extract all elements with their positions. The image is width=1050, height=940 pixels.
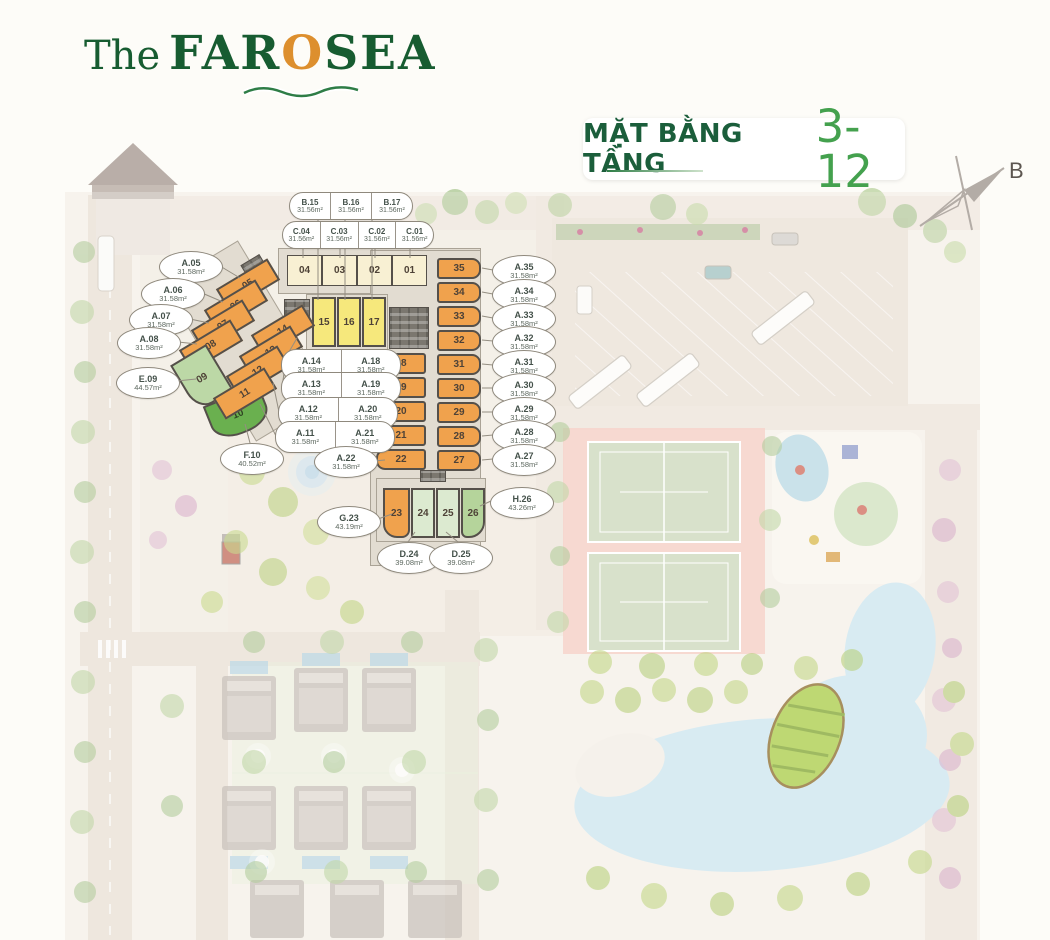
logo-o: O bbox=[281, 26, 324, 81]
unit-area: 39.08m² bbox=[447, 559, 475, 567]
unit-area: 31.58m² bbox=[291, 438, 319, 446]
unit-block-24: 24 bbox=[411, 488, 435, 538]
unit-label-b15: B.1531.56m² bbox=[290, 193, 330, 219]
unit-label-d25: D.2539.08m² bbox=[429, 542, 493, 574]
entry-tower bbox=[88, 143, 178, 255]
unit-block-35: 35 bbox=[437, 258, 481, 279]
unit-area: 31.56m² bbox=[364, 236, 390, 244]
logo-brand: FAROSEA bbox=[169, 26, 436, 81]
unit-area: 31.58m² bbox=[332, 463, 360, 471]
logo-the: The bbox=[84, 33, 160, 79]
leaf-island bbox=[754, 673, 858, 799]
unit-block-17: 17 bbox=[362, 297, 386, 347]
unit-block-28: 28 bbox=[437, 426, 481, 447]
unit-area: 43.19m² bbox=[335, 523, 363, 531]
unit-id: B.16 bbox=[343, 198, 360, 207]
plan-title: MẶT BẰNG TẦNG 3-12 bbox=[583, 118, 905, 180]
unit-label-c04: C.0431.56m² bbox=[283, 222, 320, 248]
unit-id: C.04 bbox=[293, 227, 310, 236]
unit-label-c01: C.0131.56m² bbox=[395, 222, 433, 248]
unit-label-a22: A.2231.58m² bbox=[314, 446, 378, 478]
unit-block-33: 33 bbox=[437, 306, 481, 327]
kiosk bbox=[222, 534, 240, 564]
unit-label-h26: H.2643.26m² bbox=[490, 487, 554, 519]
unit-block-31: 31 bbox=[437, 354, 481, 375]
tennis-courts bbox=[563, 428, 765, 654]
unit-label-b17: B.1731.56m² bbox=[371, 193, 412, 219]
unit-area: 31.58m² bbox=[177, 268, 205, 276]
pool-deck bbox=[567, 722, 673, 807]
unit-area: 31.56m² bbox=[326, 236, 352, 244]
unit-label-a27: A.2731.58m² bbox=[492, 444, 556, 476]
playground bbox=[768, 428, 922, 584]
unit-area: 40.52m² bbox=[238, 460, 266, 468]
north-compass-icon: B bbox=[912, 148, 1032, 243]
unit-label-a08: A.0831.58m² bbox=[117, 327, 181, 359]
unit-id: C.01 bbox=[406, 227, 423, 236]
unit-block-34: 34 bbox=[437, 282, 481, 303]
unit-block-30: 30 bbox=[437, 378, 481, 399]
stair-core-bottom bbox=[420, 470, 446, 482]
plan-title-floors: 3-12 bbox=[816, 104, 905, 194]
unit-area: 44.57m² bbox=[134, 384, 162, 392]
unit-block-04: 04 bbox=[287, 255, 322, 286]
unit-label-a11: A.1131.58m² bbox=[276, 422, 335, 452]
unit-label-f10: F.1040.52m² bbox=[220, 443, 284, 475]
unit-block-27: 27 bbox=[437, 450, 481, 471]
unit-area: 43.26m² bbox=[508, 504, 536, 512]
unit-label-c03: C.0331.56m² bbox=[320, 222, 358, 248]
unit-area: 31.58m² bbox=[351, 438, 379, 446]
unit-block-23: 23 bbox=[383, 488, 410, 538]
master-plan-page: 04 03 02 01 15 16 17 05 06 07 08 09 10 1… bbox=[0, 0, 1050, 940]
unit-label-group-c04-c01: C.0431.56m² C.0331.56m² C.0231.56m² C.01… bbox=[282, 221, 434, 249]
title-underline bbox=[607, 170, 703, 172]
unit-label-g23: G.2343.19m² bbox=[317, 506, 381, 538]
elevator-core bbox=[389, 307, 429, 349]
unit-label-e09: E.0944.57m² bbox=[116, 367, 180, 399]
unit-block-02: 02 bbox=[357, 255, 392, 286]
unit-id: B.15 bbox=[302, 198, 319, 207]
unit-block-16: 16 bbox=[337, 297, 361, 347]
unit-area: 31.58m² bbox=[510, 461, 538, 469]
unit-area: 31.58m² bbox=[159, 295, 187, 303]
swimming-pool bbox=[567, 576, 955, 884]
buses bbox=[567, 290, 815, 410]
unit-block-25: 25 bbox=[436, 488, 460, 538]
unit-area: 31.56m² bbox=[402, 236, 428, 244]
unit-block-01: 01 bbox=[392, 255, 427, 286]
logo-far: FAR bbox=[169, 26, 281, 81]
unit-area: 31.56m² bbox=[289, 236, 315, 244]
villas bbox=[222, 653, 478, 938]
north-label: B bbox=[1009, 158, 1024, 183]
unit-block-15: 15 bbox=[312, 297, 336, 347]
unit-block-26: 26 bbox=[461, 488, 485, 538]
crosswalk bbox=[98, 640, 126, 658]
brand-logo: The FAROSEA bbox=[84, 26, 436, 81]
unit-area: 31.56m² bbox=[338, 207, 364, 215]
logo-sea: SEA bbox=[324, 26, 436, 81]
unit-id: C.02 bbox=[368, 227, 385, 236]
unit-block-03: 03 bbox=[322, 255, 357, 286]
unit-block-29: 29 bbox=[437, 402, 481, 423]
unit-area: 31.56m² bbox=[379, 207, 405, 215]
unit-area: 31.56m² bbox=[297, 207, 323, 215]
unit-label-c02: C.0231.56m² bbox=[358, 222, 396, 248]
unit-id: C.03 bbox=[331, 227, 348, 236]
logo-wave-icon bbox=[242, 84, 362, 100]
hedge bbox=[556, 224, 760, 240]
unit-block-32: 32 bbox=[437, 330, 481, 351]
unit-label-group-b15-b17: B.1531.56m² B.1631.56m² B.1731.56m² bbox=[289, 192, 413, 220]
unit-area: 39.08m² bbox=[395, 559, 423, 567]
unit-label-b16: B.1631.56m² bbox=[330, 193, 371, 219]
unit-id: B.17 bbox=[384, 198, 401, 207]
street-lights bbox=[245, 743, 415, 875]
unit-area: 31.58m² bbox=[135, 344, 163, 352]
